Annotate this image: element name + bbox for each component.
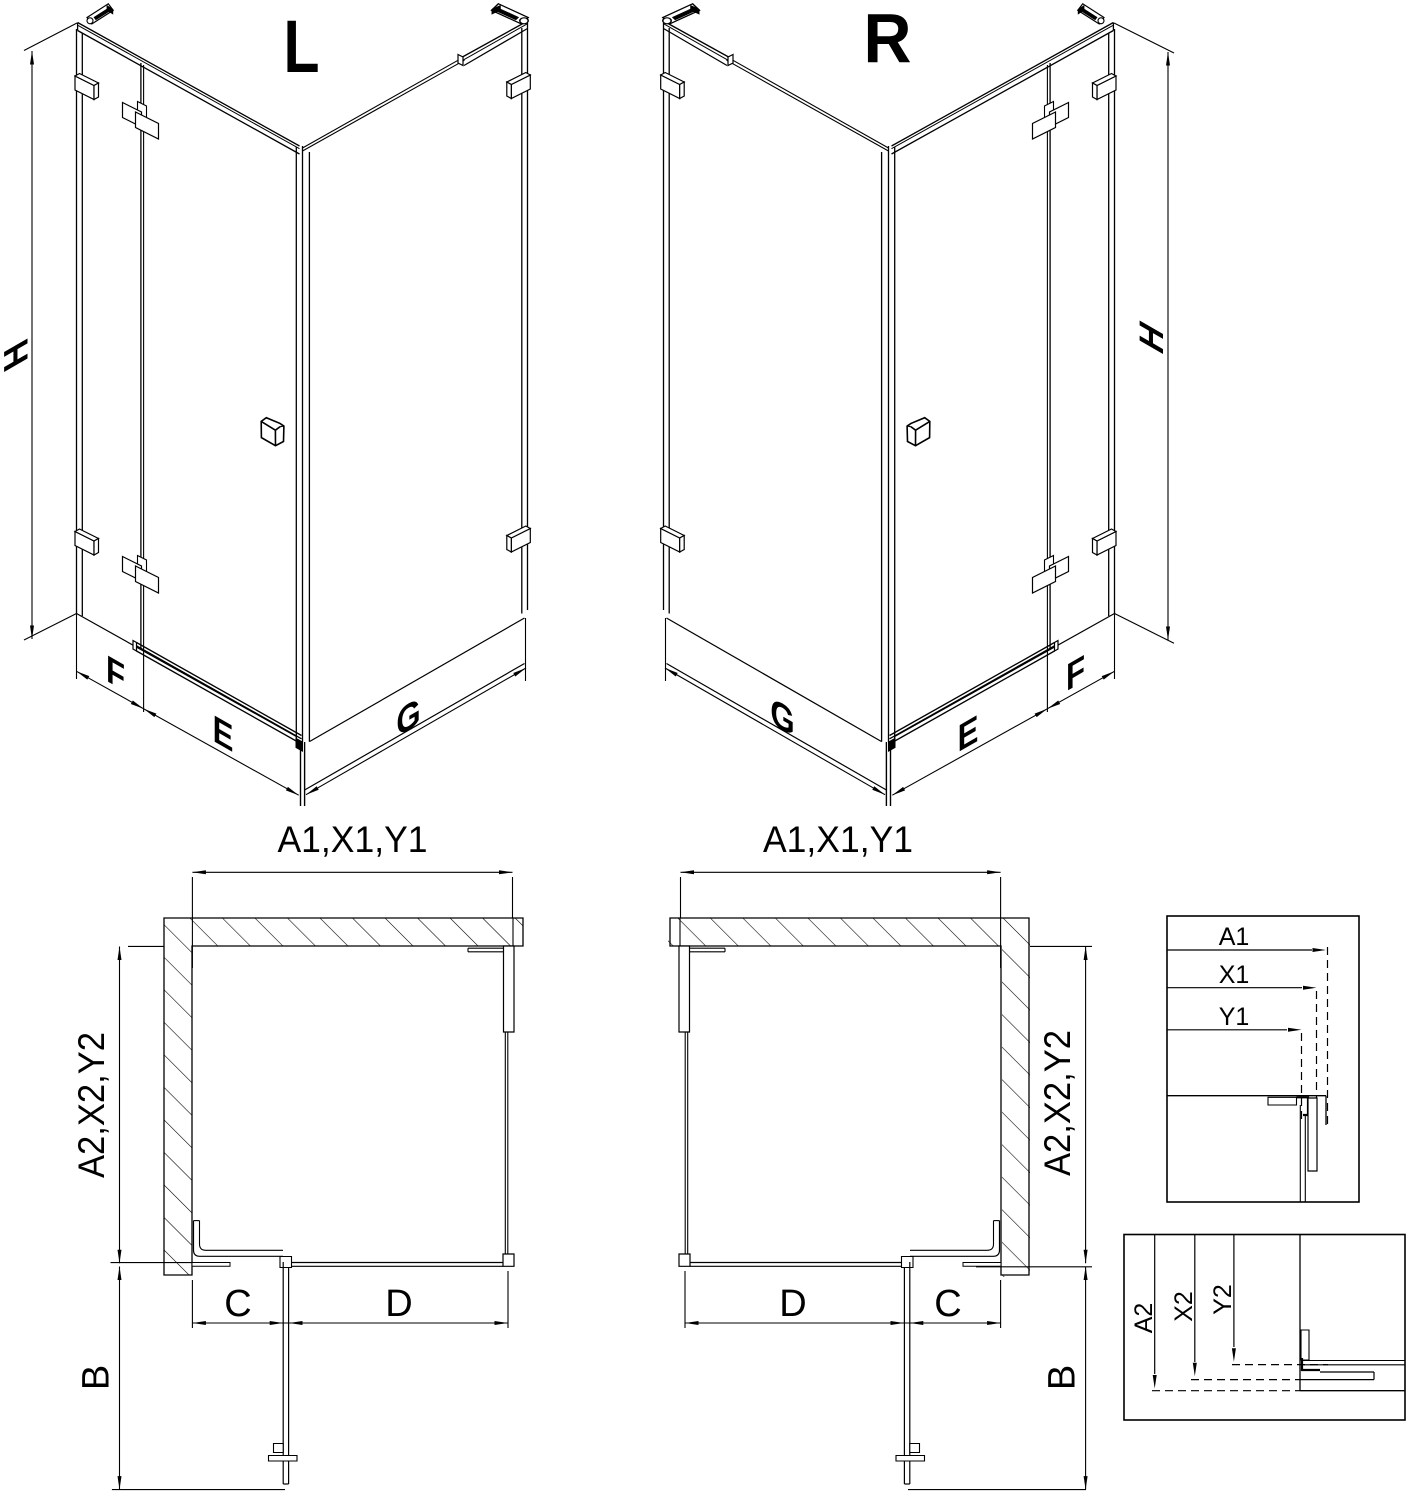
svg-text:X1: X1 [1219,961,1250,989]
svg-text:C: C [934,1283,961,1325]
svg-text:Y1: Y1 [1219,1003,1250,1031]
svg-text:B: B [76,1365,118,1390]
svg-text:A1: A1 [1219,923,1250,951]
svg-text:Y2: Y2 [1209,1284,1237,1315]
svg-text:A2,X2,Y2: A2,X2,Y2 [71,1032,112,1178]
svg-text:R: R [864,0,912,77]
svg-text:D: D [779,1283,806,1325]
svg-text:X2: X2 [1170,1291,1198,1322]
svg-text:C: C [224,1283,251,1325]
svg-text:L: L [284,5,320,88]
svg-text:A1,X1,Y1: A1,X1,Y1 [763,819,913,860]
svg-text:A2: A2 [1130,1303,1158,1334]
svg-text:B: B [1042,1365,1084,1390]
svg-text:A2,X2,Y2: A2,X2,Y2 [1037,1030,1078,1176]
svg-text:A1,X1,Y1: A1,X1,Y1 [278,819,428,860]
svg-text:D: D [385,1283,412,1325]
